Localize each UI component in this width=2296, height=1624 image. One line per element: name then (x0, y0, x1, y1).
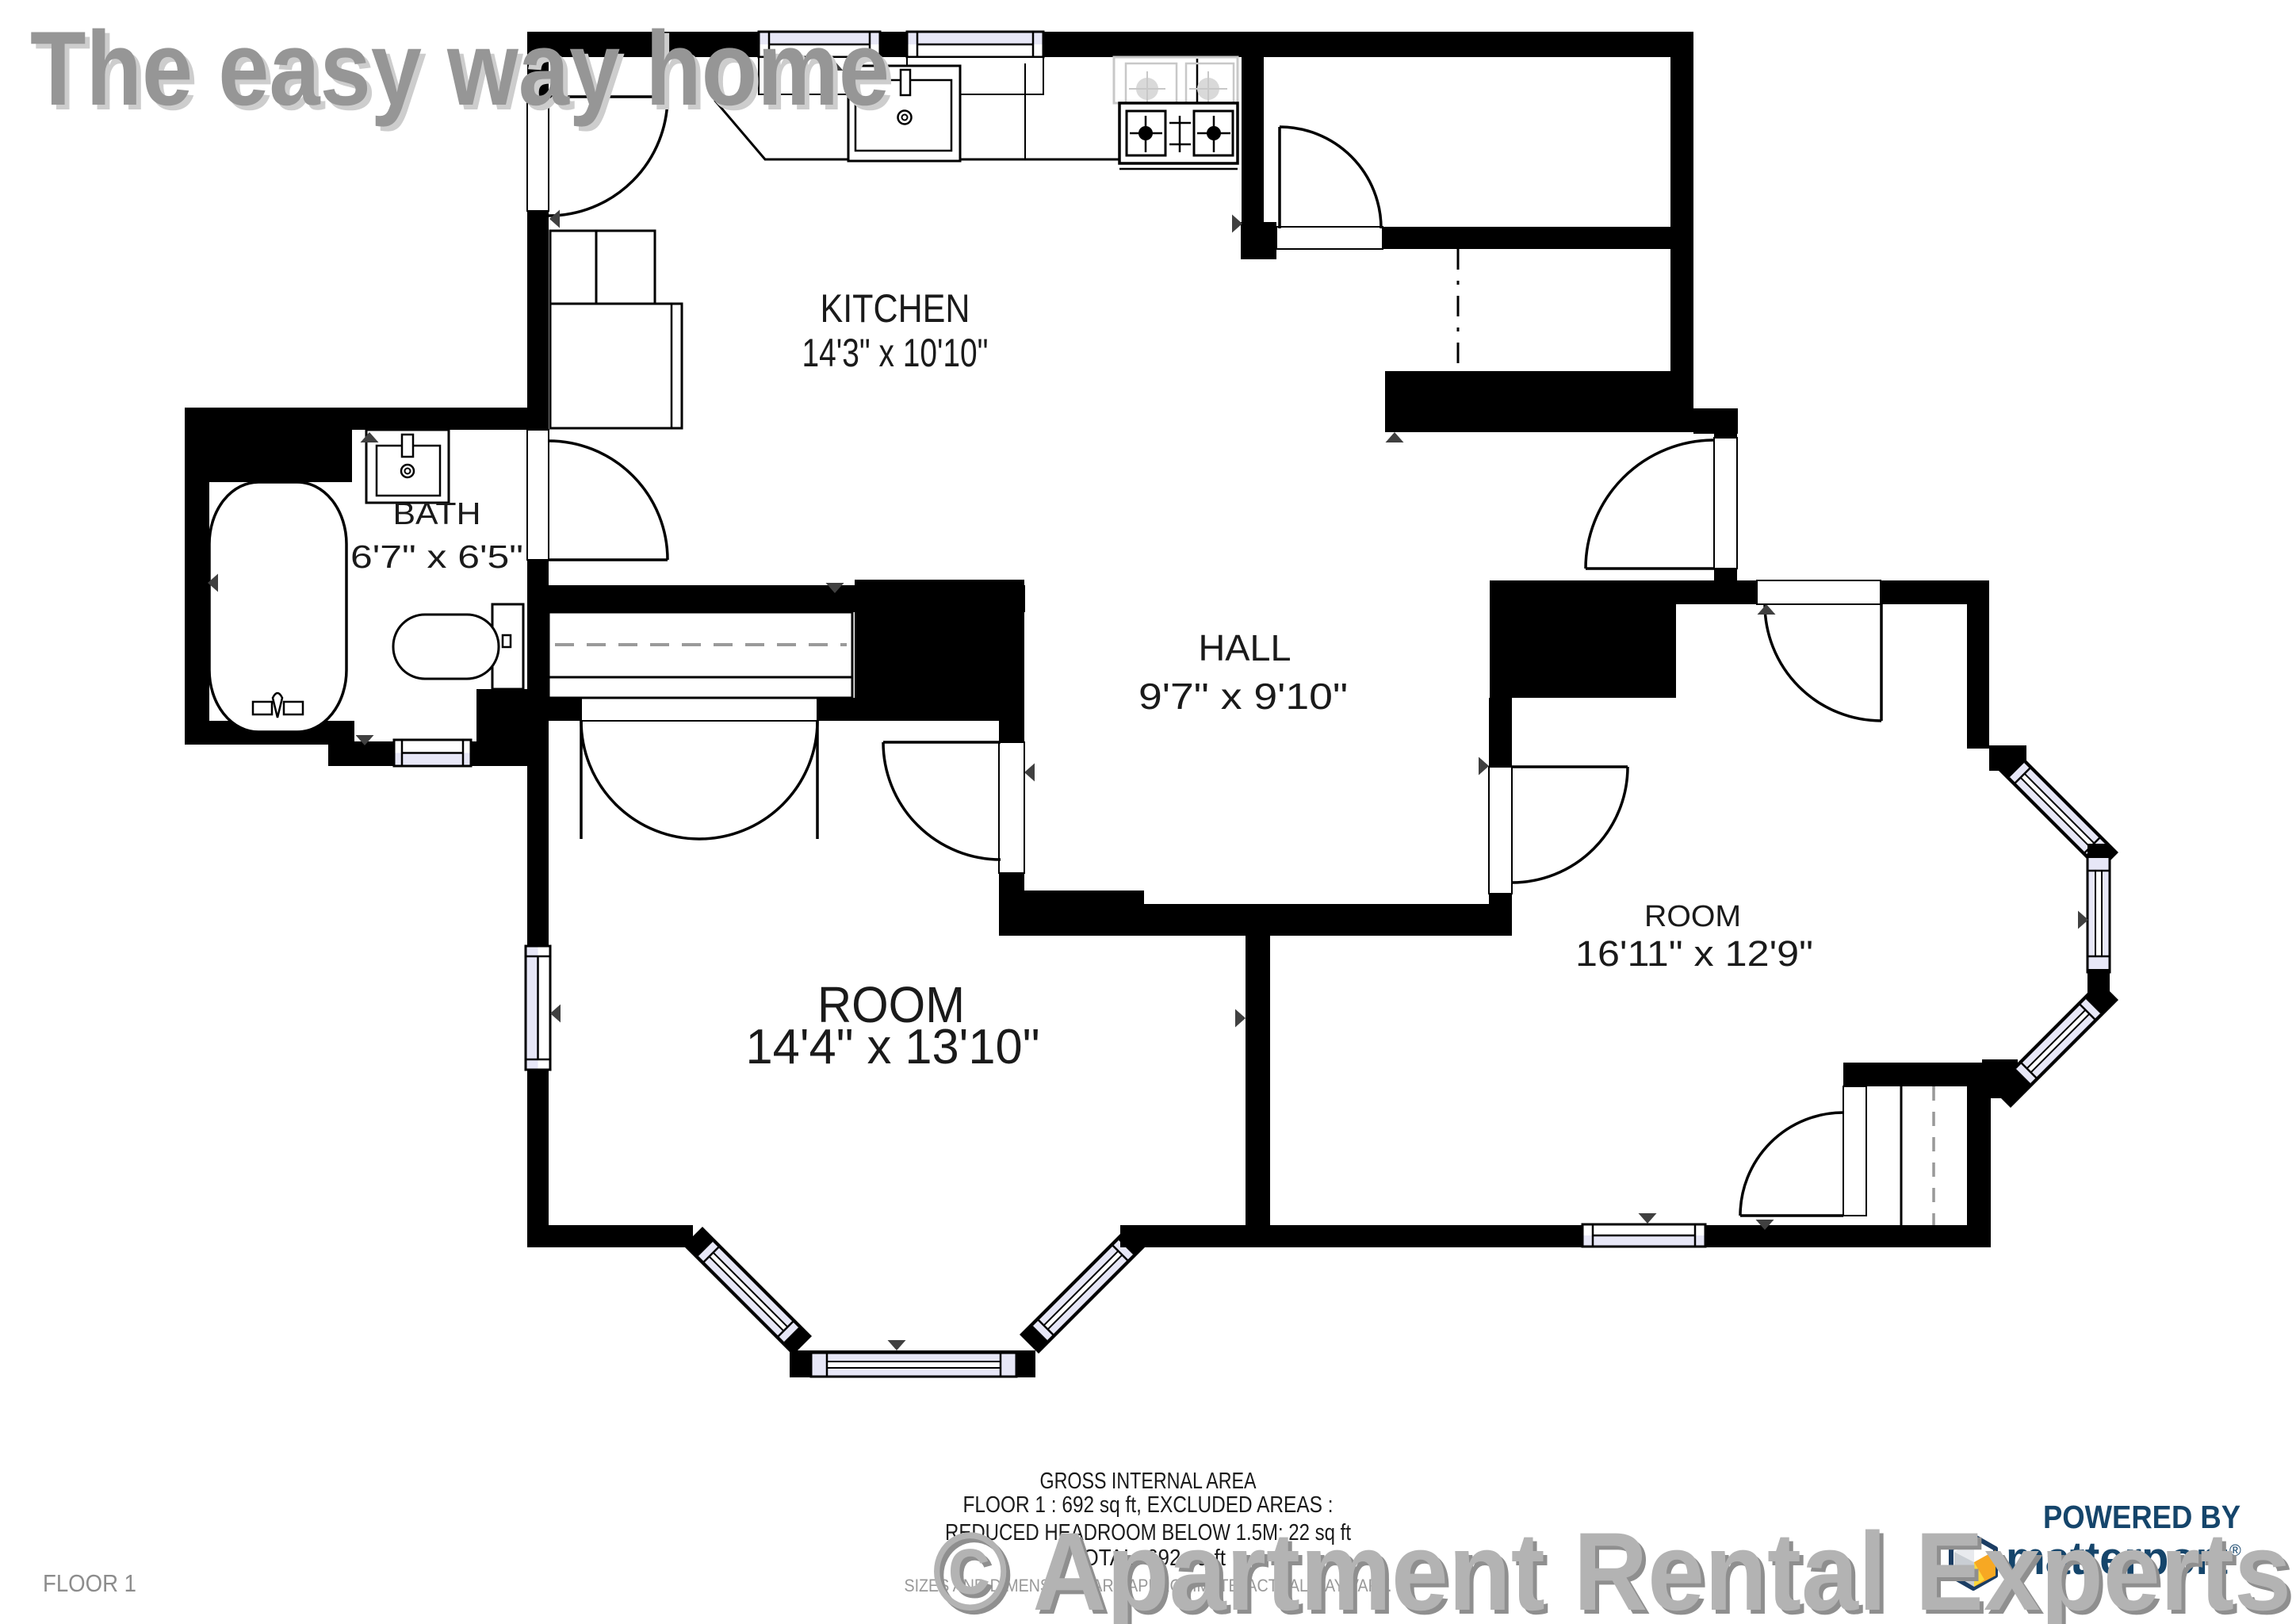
svg-text:FLOOR 1: FLOOR 1 (43, 1569, 136, 1597)
svg-text:BATH: BATH (393, 497, 481, 531)
svg-text:GROSS INTERNAL AREA: GROSS INTERNAL AREA (1040, 1469, 1257, 1494)
svg-text:KITCHEN: KITCHEN (821, 286, 970, 331)
svg-text:9'7" x 9'10": 9'7" x 9'10" (1138, 676, 1348, 717)
svg-text:6'7" x 6'5": 6'7" x 6'5" (350, 538, 523, 575)
svg-text:© Apartment Rental Experts: © Apartment Rental Experts (932, 1509, 2291, 1624)
svg-text:14'4" x 13'10": 14'4" x 13'10" (746, 1020, 1040, 1074)
svg-text:ROOM: ROOM (1644, 900, 1741, 933)
svg-text:The easy way home: The easy way home (30, 10, 890, 128)
svg-text:14'3" x 10'10": 14'3" x 10'10" (802, 331, 989, 375)
svg-text:16'11" x 12'9": 16'11" x 12'9" (1575, 933, 1813, 974)
svg-text:HALL: HALL (1199, 627, 1291, 668)
